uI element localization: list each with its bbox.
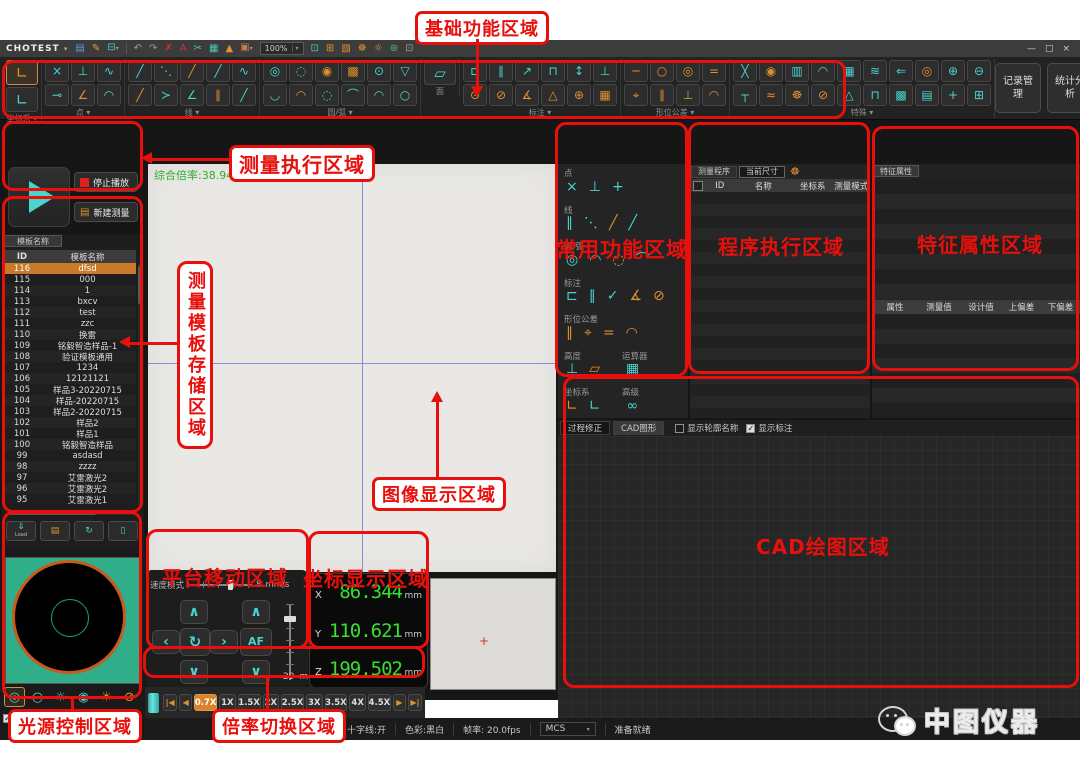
mag-option-4.5x[interactable]: 4.5X: [368, 694, 391, 711]
arrow-left-icon: [141, 152, 152, 164]
chevron-down-icon[interactable]: ▾: [292, 45, 299, 52]
ribbon-tool-icon[interactable]: ▦: [837, 60, 861, 82]
move-left-button[interactable]: ‹: [152, 630, 180, 654]
light-bulb-icon[interactable]: ☼: [374, 44, 383, 54]
ribbon-tool-icon[interactable]: ⊕: [941, 60, 965, 82]
common-tool-icon[interactable]: ⊏: [566, 289, 578, 303]
empty-row: [690, 192, 870, 204]
ribbon-tool-icon[interactable]: ◌: [315, 84, 339, 106]
statistics-analysis-button[interactable]: 统计分析: [1047, 63, 1080, 113]
display-icon[interactable]: ⊡: [311, 44, 319, 54]
ribbon-tool-icon[interactable]: ○: [393, 84, 417, 106]
empty-row: [872, 209, 1080, 224]
titlebar-icons-left: ▤✎⊟▾↶↷✗A✂▦▲▣▾: [75, 43, 252, 54]
minimize-button[interactable]: —: [1027, 44, 1036, 54]
ribbon-tool-icon[interactable]: ∥: [489, 60, 513, 82]
redo-icon[interactable]: ↷: [149, 44, 157, 54]
checkbox[interactable]: [675, 424, 684, 433]
template-row[interactable]: 115000: [5, 274, 136, 285]
ribbon-tool-icon[interactable]: △: [837, 84, 861, 106]
ribbon-tool-icon[interactable]: ⊞: [967, 84, 991, 106]
ribbon-tool-icon[interactable]: ◎: [263, 60, 287, 82]
column-attribute: 属性: [872, 301, 918, 313]
ribbon-tool-icon[interactable]: ∿: [97, 60, 121, 82]
common-section: 标注⊏∥✓∡⊘: [564, 277, 682, 306]
ribbon-tool-icon[interactable]: ◌: [289, 60, 313, 82]
common-tool-icon[interactable]: ◠: [626, 326, 638, 340]
close-button[interactable]: ×: [1062, 44, 1070, 54]
delete-template-button[interactable]: ▯: [108, 521, 138, 541]
ribbon-tool-icon[interactable]: ▤: [915, 84, 939, 106]
common-tool-icon[interactable]: ⋱: [584, 216, 598, 230]
template-row[interactable]: 101样品1: [5, 428, 136, 439]
ribbon-tool-icon[interactable]: ◠: [289, 84, 313, 106]
ribbon-tool-icon[interactable]: ┬: [733, 84, 757, 106]
common-tool-icon[interactable]: ∥: [566, 326, 573, 340]
stop-playback-label: 停止播放: [93, 176, 129, 189]
font-size-icon[interactable]: A: [180, 44, 187, 54]
load-template-button[interactable]: ⇓Load: [6, 521, 36, 541]
template-row[interactable]: 105样品3-20220715: [5, 384, 136, 395]
ribbon-tool-icon[interactable]: ∠: [71, 84, 95, 106]
empty-row: [690, 336, 870, 348]
ribbon-tool-icon[interactable]: ×: [45, 60, 69, 82]
common-section-label: 运算器: [622, 350, 680, 360]
empty-row: [690, 216, 870, 228]
tab-measure-program[interactable]: 测量程序: [691, 166, 737, 178]
ribbon-tool-icon[interactable]: ∥: [206, 84, 230, 106]
edit-icon[interactable]: ✎: [92, 44, 100, 54]
autofocus-button[interactable]: AF: [240, 628, 272, 656]
ribbon-tool-icon[interactable]: ◎: [915, 60, 939, 82]
empty-row: [690, 288, 870, 300]
ribbon-tool-icon[interactable]: ⊥: [71, 60, 95, 82]
framerate-status: 帧率: 20.0fps: [463, 723, 521, 736]
template-row[interactable]: 96艾雷激光2: [5, 483, 136, 494]
empty-row: [872, 388, 1080, 403]
coordinate-y-row: Y110.621mm: [315, 620, 422, 642]
template-row[interactable]: 102样品2: [5, 417, 136, 428]
cad-display-options: 显示轮廓名称✓显示标注: [667, 422, 792, 434]
empty-row: [690, 324, 870, 336]
mirror-icon[interactable]: ▲: [225, 44, 233, 54]
ribbon-tool-icon[interactable]: ▩: [889, 84, 913, 106]
ribbon-tool-icon[interactable]: ◠: [367, 84, 391, 106]
program-table-rows: [690, 192, 870, 418]
ribbon-tool-icon[interactable]: ∡: [515, 84, 539, 106]
ribbon-tool-icon[interactable]: ╱: [128, 60, 152, 82]
ribbon-tool-icon[interactable]: ◎: [676, 60, 700, 82]
globe-icon[interactable]: ⊛: [390, 44, 398, 54]
annotation-text-coord-display: 坐标显示区域: [303, 563, 429, 592]
common-tool-icon[interactable]: +: [612, 180, 624, 194]
empty-row: [872, 358, 1080, 373]
ribbon-group-线: ╱⋱╱╱∿╱≻∠∥╱线 ▾: [125, 59, 260, 118]
measure-execution-panel: 停止播放 ▤ 新建测量: [4, 164, 142, 230]
ribbon-tool-icon[interactable]: ▩: [341, 60, 365, 82]
select-all-checkbox[interactable]: [693, 181, 703, 191]
ribbon-tool-icon[interactable]: ╱: [180, 60, 204, 82]
ribbon-tool-icon[interactable]: ▽: [393, 60, 417, 82]
mag-option-0.7x[interactable]: 0.7X: [194, 694, 217, 711]
ribbon-tool-icon[interactable]: ∟: [6, 87, 38, 112]
color-mode-status: 色彩:黑白: [405, 723, 444, 736]
ribbon-tool-icon[interactable]: ∿: [232, 60, 256, 82]
ribbon-tool-icon[interactable]: ◉: [315, 60, 339, 82]
template-list: 116dfsd1150001141113bxcv112test111zzc110…: [5, 263, 136, 505]
checkbox-label: 显示标注: [758, 422, 792, 434]
table-icon[interactable]: ▦: [209, 44, 218, 54]
ribbon-group-圆/弧: ◎◌◉▩⊙▽◡◠◌⌒◠○圆/弧 ▾: [260, 59, 421, 118]
divider: [530, 723, 531, 735]
template-row[interactable]: 98zzzz: [5, 461, 136, 472]
home-reset-button[interactable]: ↻: [180, 628, 210, 656]
ribbon-tool-icon[interactable]: ≈: [759, 84, 783, 106]
ring-light-preview[interactable]: [5, 557, 141, 684]
column-measure-mode: 测量模式: [832, 180, 870, 192]
scrollbar-thumb[interactable]: [10, 511, 96, 515]
cad-display-option-0: 显示轮廓名称: [675, 422, 738, 434]
z-speed-slider[interactable]: [284, 604, 296, 680]
ribbon-group-点: ×⊥∿⊸∠◠点 ▾: [42, 59, 125, 118]
app-menu[interactable]: CHOTEST ▾: [6, 44, 68, 54]
ribbon-tool-icon[interactable]: ⊸: [45, 84, 69, 106]
ribbon-tool-icon[interactable]: ⌒: [341, 84, 365, 106]
common-tool-icon[interactable]: ∞: [626, 399, 638, 413]
ribbon-tool-icon[interactable]: ◉: [759, 60, 783, 82]
window-controls: — □ ×: [1027, 44, 1074, 54]
coaxial-light-icon[interactable]: ◉: [73, 687, 94, 707]
ribbon-group-label: 线 ▾: [185, 106, 200, 118]
column-design-value: 设计值: [960, 301, 1002, 313]
tab-template-name[interactable]: 模板名称: [4, 235, 62, 247]
tab-feature-attributes[interactable]: 特征属性: [873, 165, 919, 177]
common-tool-icon[interactable]: ╱: [628, 216, 636, 230]
common-section: 形位公差∥⌖=◠: [564, 313, 682, 342]
common-section-label: 形位公差: [564, 313, 622, 323]
template-row[interactable]: 104样品-20220715: [5, 395, 136, 406]
column-upper-deviation: 上偏差: [1002, 301, 1041, 313]
cube-icon[interactable]: ▧: [341, 44, 350, 54]
template-row[interactable]: 1141: [5, 285, 136, 296]
app-name: CHOTEST: [6, 44, 60, 54]
common-tool-icon[interactable]: ∥: [589, 289, 596, 303]
ribbon-tool-icon[interactable]: ⊥: [676, 84, 700, 106]
annotation-text-platform-move: 平台移动区域: [162, 562, 288, 591]
column-name: 名称: [734, 180, 793, 192]
vertical-scrollbar[interactable]: [138, 263, 143, 505]
cad-tabs: 过程修正 CAD图形 显示轮廓名称✓显示标注: [558, 420, 1080, 436]
template-row[interactable]: 116dfsd: [5, 263, 136, 274]
coordinate-unit: mm: [402, 668, 422, 678]
empty-row: [690, 348, 870, 360]
template-row[interactable]: 100铭毅智造样品: [5, 439, 136, 450]
template-row[interactable]: 97艾雷激光2: [5, 472, 136, 483]
crosshair-marker-icon: +: [479, 637, 489, 645]
template-row[interactable]: 109铭毅智造样品-1: [5, 340, 136, 351]
gear-icon[interactable]: ☸: [790, 165, 800, 178]
delete-icon[interactable]: ✗: [164, 44, 172, 54]
chevron-down-icon: ▾: [250, 45, 253, 52]
move-down-button[interactable]: ∨: [180, 660, 208, 684]
ribbon-tool-icon[interactable]: ○: [650, 60, 674, 82]
ribbon-tool-icon[interactable]: ▱: [424, 60, 456, 85]
ribbon-tool-icon[interactable]: ⊏: [463, 60, 487, 82]
ribbon-tool-icon[interactable]: =: [702, 60, 726, 82]
print-icon[interactable]: ⊟▾: [107, 43, 118, 54]
chevron-down-icon: ▾: [116, 45, 119, 52]
outer-ring-light-icon[interactable]: ○: [27, 687, 48, 707]
chevron-down-icon: ▾: [587, 726, 590, 733]
program-tabs: 测量程序 当前尺寸 ☸: [691, 165, 800, 178]
template-row[interactable]: 1071234: [5, 362, 136, 373]
coordinate-value: 199.502: [327, 658, 402, 680]
common-section-label: 高度: [564, 350, 622, 360]
move-up-button[interactable]: ∧: [180, 600, 208, 624]
ring-light-outer-circle: [12, 560, 126, 674]
annotation-connector: [129, 342, 178, 345]
ribbon-tool-icon[interactable]: ⊘: [811, 84, 835, 106]
column-id: ID: [5, 252, 39, 262]
common-tool-icon[interactable]: ∥: [566, 216, 573, 230]
ribbon-tool-icon[interactable]: ╱: [206, 60, 230, 82]
ribbon-tool-icon[interactable]: ◠: [702, 84, 726, 106]
coordinate-value: 110.621: [327, 620, 402, 642]
mag-last-button[interactable]: ▶|: [408, 694, 422, 711]
common-functions-panel: 点×⊥+线∥⋱╱╱圆/弧◎◠◌⌒标注⊏∥✓∡⊘形位公差∥⌖=◠高度运算器⊥▱▦坐…: [558, 164, 688, 418]
common-tool-icon[interactable]: ⌖: [584, 326, 592, 340]
common-tool-icon[interactable]: =: [603, 326, 615, 340]
app-window: CHOTEST ▾ ▤✎⊟▾↶↷✗A✂▦▲▣▾ 100%▾ ⊡⊞▧☸☼⊛⊡ — …: [0, 40, 1080, 700]
common-section-label: 点: [564, 167, 622, 177]
annotation-label-basic-functions: 基础功能区域: [415, 11, 549, 45]
ribbon-tool-icon[interactable]: ◡: [263, 84, 287, 106]
feature-attributes-panel: 特征属性 属性 测量值 设计值 上偏差 下偏差: [872, 164, 1080, 418]
combined-magnification-readout: 综合倍率:38.94: [154, 167, 233, 183]
bulb-off-icon[interactable]: ⊘: [119, 687, 140, 707]
column-coordinate-system: 坐标系: [793, 180, 833, 192]
tab-cad-graphics[interactable]: CAD图形: [613, 421, 664, 435]
column-lower-deviation: 下偏差: [1041, 301, 1080, 313]
undo-icon[interactable]: ↶: [134, 44, 142, 54]
titlebar-icons-right: ⊡⊞▧☸☼⊛⊡: [311, 44, 414, 54]
save-icon[interactable]: ▤: [75, 44, 84, 54]
screenshot: CHOTEST ▾ ▤✎⊟▾↶↷✗A✂▦▲▣▾ 100%▾ ⊡⊞▧☸☼⊛⊡ — …: [0, 0, 1080, 765]
ribbon-tool-icon[interactable]: ╱: [232, 84, 256, 106]
ring-light-inner-circle: [51, 599, 89, 637]
template-row[interactable]: 113bxcv: [5, 296, 136, 307]
template-row[interactable]: 110换雷: [5, 329, 136, 340]
ribbon-group-label: 圆/弧 ▾: [327, 106, 352, 118]
ready-status: 准备就绪: [615, 723, 651, 736]
annotation-label-image-display: 图像显示区域: [372, 477, 506, 511]
ribbon-tool-icon[interactable]: ⊖: [967, 60, 991, 82]
common-tool-icon[interactable]: ╱: [609, 216, 617, 230]
checkbox[interactable]: ✓: [746, 424, 755, 433]
ribbon-groups: ∟∟坐标系 ▾×⊥∿⊸∠◠点 ▾╱⋱╱╱∿╱≻∠∥╱线 ▾◎◌◉▩⊙▽◡◠◌⌒◠…: [3, 59, 995, 124]
wechat-icon: [878, 706, 914, 736]
annotation-text-cad: CAD绘图区域: [756, 531, 890, 560]
arrow-up-icon: [431, 391, 443, 402]
empty-row: [690, 384, 870, 396]
titlebar-divider: [126, 43, 127, 54]
ribbon-tool-icon[interactable]: ⊥: [593, 60, 617, 82]
common-section-label: 高级: [622, 386, 680, 396]
mag-option-4x[interactable]: 4X: [349, 694, 366, 711]
mag-first-button[interactable]: |◀: [163, 694, 177, 711]
empty-row: [872, 373, 1080, 388]
ribbon-tool-icon[interactable]: ≋: [863, 60, 887, 82]
common-tool-icon[interactable]: ✓: [607, 289, 619, 303]
column-template-name: 模板名称: [39, 251, 136, 263]
annotation-label-mag-switch: 倍率切换区域: [212, 709, 346, 743]
common-section: 点×⊥+: [564, 167, 682, 196]
ribbon-tool-icon[interactable]: ⊘: [489, 84, 513, 106]
common-tool-icon[interactable]: ∟: [589, 399, 601, 413]
ribbon-tool-icon[interactable]: ─: [624, 60, 648, 82]
common-section: 线∥⋱╱╱: [564, 204, 682, 233]
ring-light-icon[interactable]: ◎: [4, 687, 25, 707]
ribbon-tool-icon[interactable]: ☸: [785, 84, 809, 106]
empty-row: [690, 360, 870, 372]
maximize-button[interactable]: □: [1045, 44, 1054, 54]
ribbon-tool-icon[interactable]: ∠: [180, 84, 204, 106]
ribbon-tool-icon[interactable]: ⇐: [889, 60, 913, 82]
image-icon[interactable]: ▣▾: [240, 43, 252, 54]
new-measurement-label: 新建测量: [93, 206, 129, 219]
mcs-select[interactable]: MCS ▾: [540, 722, 596, 736]
arrow-left-icon: [119, 336, 130, 348]
template-row[interactable]: 103样品2-20220715: [5, 406, 136, 417]
template-row[interactable]: 108验证模板通用: [5, 351, 136, 362]
segment-ring-light-icon[interactable]: ☼: [50, 687, 71, 707]
ribbon-tool-icon[interactable]: ╳: [733, 60, 757, 82]
document-icon: ▤: [80, 207, 89, 218]
column-measured-value: 测量值: [918, 301, 960, 313]
common-tool-icon[interactable]: ⊥: [566, 362, 578, 376]
cad-canvas[interactable]: [558, 436, 1080, 718]
ribbon-tool-icon[interactable]: ▦: [593, 84, 617, 106]
ribbon-group-形位公差: ─○◎=⌖∥⊥◠形位公差 ▾: [621, 59, 730, 118]
ribbon-group-label: 面: [436, 85, 444, 97]
template-action-buttons: ⇓Load▤↻▯: [6, 521, 138, 539]
common-tool-icon[interactable]: ⊥: [589, 180, 601, 194]
mag-prev-button[interactable]: ◀: [179, 694, 192, 711]
tab-process-correction[interactable]: 过程修正: [560, 421, 610, 435]
ribbon-tool-icon[interactable]: ╱: [128, 84, 152, 106]
play-icon: [29, 181, 55, 213]
annotation-label-measure-exec: 测量执行区域: [229, 145, 375, 182]
brand-name: 中图仪器: [924, 702, 1040, 739]
axis-label: Z: [315, 667, 327, 678]
record-management-button[interactable]: 记录管理: [995, 63, 1041, 113]
divider: [395, 723, 396, 735]
checkbox-label: 显示轮廓名称: [687, 422, 738, 434]
ribbon-tool-icon[interactable]: ⊕: [567, 84, 591, 106]
common-tool-icon[interactable]: ▱: [589, 362, 600, 376]
tab-current-dimension[interactable]: 当前尺寸: [739, 166, 785, 178]
ribbon-tool-icon[interactable]: ⊓: [863, 84, 887, 106]
axis-label: Y: [315, 629, 327, 640]
template-row[interactable]: 10612121121: [5, 373, 136, 384]
stop-icon: [80, 178, 89, 187]
coordinate-z-row: Z199.502mm: [315, 658, 422, 680]
feature-table-header: 属性 测量值 设计值 上偏差 下偏差: [872, 300, 1080, 314]
empty-row: [690, 300, 870, 312]
horizontal-scrollbar[interactable]: [8, 511, 134, 515]
common-tool-icon[interactable]: ⊘: [653, 289, 665, 303]
crosshair-status: 十字线:开: [347, 723, 386, 736]
save-template-button[interactable]: ▤: [40, 521, 70, 541]
ribbon-group-label: 标注 ▾: [529, 106, 552, 118]
arrow-down-icon: [471, 86, 483, 97]
cad-drawing-panel: 过程修正 CAD图形 显示轮廓名称✓显示标注: [558, 420, 1080, 718]
move-right-button[interactable]: ›: [210, 630, 238, 654]
bulb-on-icon[interactable]: ☀: [96, 687, 117, 707]
annotation-connector: [151, 158, 230, 161]
settings-gear-icon[interactable]: ☸: [358, 44, 367, 54]
annotation-text-program-exec: 程序执行区域: [718, 231, 844, 260]
ribbon-tool-icon[interactable]: ◠: [97, 84, 121, 106]
ribbon-tool-icon[interactable]: ⊙: [367, 60, 391, 82]
empty-row: [690, 312, 870, 324]
empty-row: [872, 314, 1080, 329]
ribbon-tool-icon[interactable]: ◠: [811, 60, 835, 82]
ribbon-tool-icon[interactable]: ↗: [515, 60, 539, 82]
annotation-connector: [476, 39, 479, 87]
zoom-level-select[interactable]: 100%▾: [260, 42, 304, 55]
scrollbar-thumb[interactable]: [138, 266, 143, 304]
template-row[interactable]: 111zzc: [5, 318, 136, 329]
camera-thumbnail[interactable]: +: [430, 578, 556, 690]
refresh-template-button[interactable]: ↻: [74, 521, 104, 541]
crosshair-vertical-line: [362, 164, 363, 572]
template-table-header: ID 模板名称: [5, 250, 136, 263]
template-row[interactable]: 112test: [5, 307, 136, 318]
empty-row: [872, 179, 1080, 194]
stop-playback-button[interactable]: 停止播放: [74, 172, 138, 192]
ribbon-tool-icon[interactable]: △: [541, 84, 565, 106]
ribbon-tool-icon[interactable]: ∟: [6, 60, 38, 85]
ribbon-tool-icon[interactable]: +: [941, 84, 965, 106]
template-row[interactable]: 99asdasd: [5, 450, 136, 461]
common-tool-icon[interactable]: ∟: [566, 399, 578, 413]
common-tool-icon[interactable]: ×: [566, 180, 578, 194]
ribbon-group-label: 坐标系 ▾: [7, 112, 38, 124]
ribbon-tool-icon[interactable]: ≻: [154, 84, 178, 106]
new-measurement-button[interactable]: ▤ 新建测量: [74, 202, 138, 222]
brand-watermark: 中图仪器: [878, 702, 1040, 739]
ribbon-tool-icon[interactable]: ⊓: [541, 60, 565, 82]
ribbon-tool-icon[interactable]: ↕: [567, 60, 591, 82]
empty-row: [690, 396, 870, 408]
slider-handle[interactable]: [284, 616, 296, 622]
measure-tool-icon[interactable]: ✂: [194, 44, 202, 54]
ribbon-tool-icon[interactable]: ▥: [785, 60, 809, 82]
mag-next-button[interactable]: ▶: [393, 694, 406, 711]
play-measurement-button[interactable]: [8, 167, 70, 227]
common-tool-icon[interactable]: ∡: [629, 289, 642, 303]
chevron-down-icon: ▾: [64, 45, 69, 53]
page-icon[interactable]: ⊡: [405, 44, 413, 54]
ribbon-tool-icon[interactable]: ⌖: [624, 84, 648, 106]
common-tool-icon[interactable]: ▦: [626, 362, 639, 376]
snap-icon[interactable]: ⊞: [326, 44, 334, 54]
focus-up-button[interactable]: ∧: [242, 600, 270, 624]
ribbon-tool-icon[interactable]: ∥: [650, 84, 674, 106]
ribbon-tool-icon[interactable]: ⋱: [154, 60, 178, 82]
template-row[interactable]: 95艾雷激光1: [5, 494, 136, 505]
